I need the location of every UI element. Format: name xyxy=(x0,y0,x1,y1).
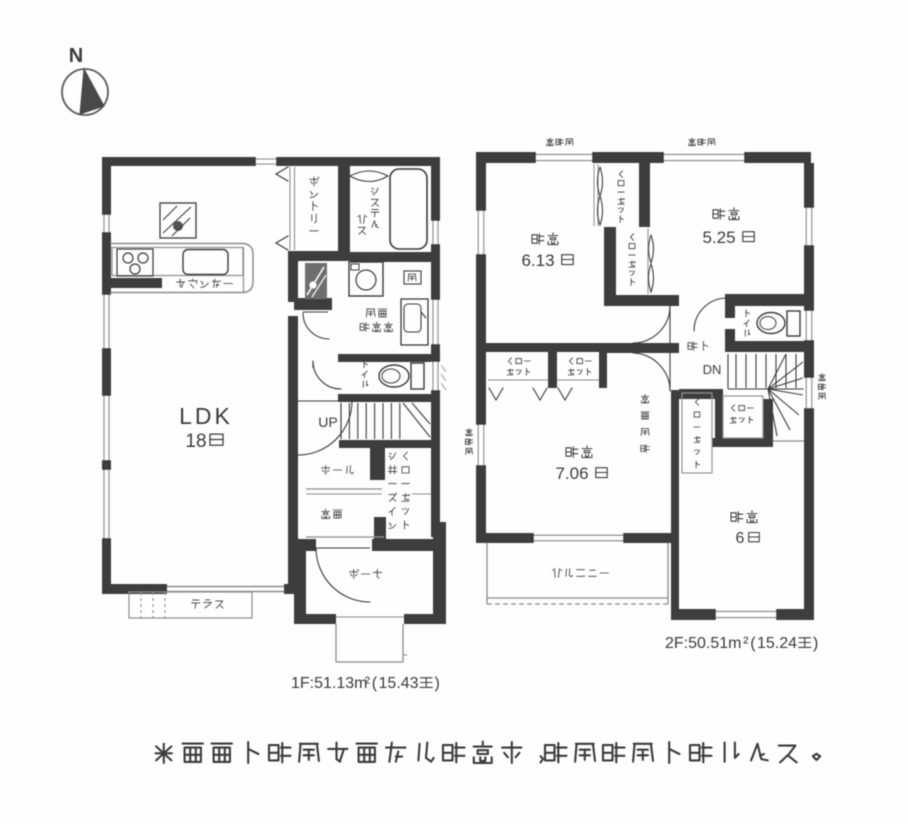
svg-text:LDK: LDK xyxy=(179,403,233,429)
svg-text:UP: UP xyxy=(318,414,337,430)
svg-text:5.25: 5.25 xyxy=(702,228,735,247)
svg-text:6.13: 6.13 xyxy=(521,251,554,270)
svg-text:15.24: 15.24 xyxy=(757,635,797,652)
svg-text:): ) xyxy=(813,635,818,652)
svg-text:2F:50.51m: 2F:50.51m xyxy=(665,635,741,652)
svg-text:(: ( xyxy=(750,635,756,652)
svg-text:1F:51.13m: 1F:51.13m xyxy=(291,675,367,692)
svg-text:N: N xyxy=(69,45,83,67)
svg-text:): ) xyxy=(435,675,440,692)
svg-text:(: ( xyxy=(372,675,378,692)
svg-text:²: ² xyxy=(365,675,371,692)
svg-text:18: 18 xyxy=(185,431,206,452)
svg-text:7.06: 7.06 xyxy=(555,464,588,483)
svg-text:DN: DN xyxy=(703,362,722,377)
svg-text:²: ² xyxy=(743,635,749,652)
svg-text:15.43: 15.43 xyxy=(379,675,419,692)
svg-text:6: 6 xyxy=(736,530,745,547)
